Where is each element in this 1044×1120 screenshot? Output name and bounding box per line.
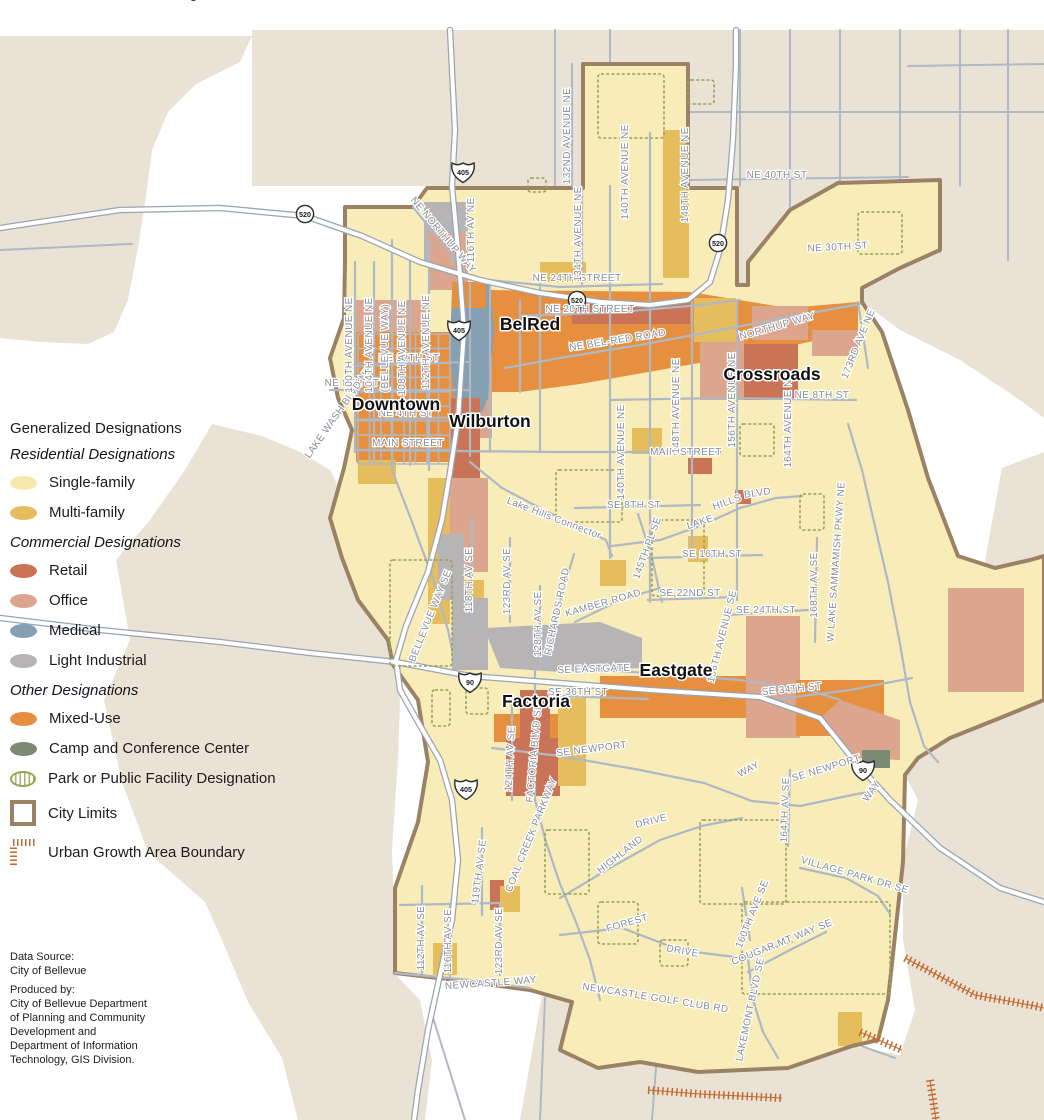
- shield-number: 520: [299, 210, 311, 219]
- street-label: 123RD AV SE: [502, 548, 513, 614]
- legend-item-urban-growth-area-boundary: Urban Growth Area Boundary: [10, 839, 340, 865]
- street-label: 148TH AVENUE NE: [671, 358, 682, 453]
- street-label: SE 16TH ST: [682, 549, 742, 560]
- legend-item-label: Urban Growth Area Boundary: [48, 844, 245, 861]
- street-label: 168TH AV SE: [809, 552, 820, 617]
- street-label: SE 24TH ST: [736, 605, 796, 616]
- medical-swatch-icon: [10, 624, 37, 638]
- street-label: 104TH AVENUE NE: [364, 297, 375, 392]
- legend-item-retail: Retail: [10, 562, 340, 579]
- camp-and-conference-center-swatch-icon: [10, 742, 37, 756]
- landuse-patch-office: [948, 588, 1024, 692]
- credit-line: City of Bellevue: [10, 964, 200, 978]
- street-label: 128TH AV SE: [533, 591, 544, 656]
- credit-line: City of Bellevue Department: [10, 997, 200, 1011]
- street-label: NE 40TH ST: [747, 170, 808, 181]
- map-legend: Generalized Designations Residential Des…: [10, 420, 340, 878]
- credit-line: Data Source:: [10, 950, 200, 964]
- street-label: 140TH AVENUE NE: [616, 404, 627, 499]
- office-swatch-icon: [10, 594, 37, 608]
- legend-item-label: Park or Public Facility Designation: [48, 770, 276, 787]
- legend-body: Residential DesignationsSingle-familyMul…: [10, 446, 340, 865]
- area-label: BelRed: [500, 314, 560, 334]
- street-label: 116TH AV NE: [466, 197, 477, 262]
- street-label: (BELLEVUE WAY): [380, 304, 391, 392]
- landuse-patch-multi: [600, 560, 626, 586]
- street-label: 134TH AVENUE NE: [573, 186, 584, 281]
- street-label: 112TH AVENUE NE: [421, 295, 432, 390]
- area-label: Crossroads: [723, 364, 821, 384]
- legend-item-label: Medical: [49, 622, 101, 639]
- legend-item-camp-and-conference-center: Camp and Conference Center: [10, 740, 340, 757]
- outside-road: [430, 1008, 465, 1120]
- legend-heading-other-designations: Other Designations: [10, 682, 340, 699]
- urban-growth-area-boundary-swatch-icon: [10, 839, 36, 865]
- area-label: Factoria: [502, 691, 570, 711]
- light-industrial-swatch-icon: [10, 654, 37, 668]
- state-route-520-shield-icon: 520: [709, 234, 726, 251]
- beige-region: [0, 36, 252, 344]
- multi-family-swatch-icon: [10, 506, 37, 520]
- retail-swatch-icon: [10, 564, 37, 578]
- legend-item-label: Office: [49, 592, 88, 609]
- street-label: MAIN STREET: [372, 438, 444, 449]
- area-label: Wilburton: [449, 411, 530, 431]
- shield-number: 405: [453, 326, 465, 335]
- street-label: 100TH AVENUE NE: [344, 297, 355, 392]
- street-label: 140TH AVENUE NE: [620, 124, 631, 219]
- legend-item-label: Retail: [49, 562, 87, 579]
- credit-line: Development and: [10, 1025, 200, 1039]
- mixed-use-swatch-icon: [10, 712, 37, 726]
- street-label: NE 8TH ST: [795, 390, 850, 401]
- legend-item-label: Light Industrial: [49, 652, 147, 669]
- area-label: Downtown: [352, 394, 440, 414]
- legend-heading-commercial-designations: Commercial Designations: [10, 534, 340, 551]
- legend-item-park-or-public-facility-designation: Park or Public Facility Designation: [10, 770, 340, 787]
- landuse-patch-office: [746, 616, 800, 738]
- landuse-patch-multi: [558, 698, 586, 786]
- street-label: 108TH AVENUE NE: [397, 300, 408, 395]
- street-label: 164TH AV SE: [779, 777, 792, 843]
- state-route-520-shield-icon: 520: [296, 205, 313, 222]
- legend-item-mixed-use: Mixed-Use: [10, 710, 340, 727]
- shield-number: 520: [712, 239, 724, 248]
- legend-item-multi-family: Multi-family: [10, 504, 340, 521]
- legend-item-light-industrial: Light Industrial: [10, 652, 340, 669]
- bellevue-landuse-map-page: Generalized land use designations 405405…: [0, 0, 1044, 1120]
- legend-item-label: Mixed-Use: [49, 710, 121, 727]
- shield-number: 405: [457, 168, 469, 177]
- map-credits: Data Source:City of BellevueProduced by:…: [10, 950, 200, 1067]
- legend-item-office: Office: [10, 592, 340, 609]
- credit-line: Department of Information: [10, 1039, 200, 1053]
- landuse-patch-multi: [838, 1012, 862, 1046]
- street-label: 123RD AV SE: [494, 908, 505, 974]
- street-label: 132ND AVENUE NE: [562, 88, 573, 184]
- street-label: SE 22ND ST: [659, 588, 720, 599]
- single-family-swatch-icon: [10, 476, 37, 490]
- legend-item-label: Multi-family: [49, 504, 125, 521]
- credit-line: Produced by:: [10, 983, 200, 997]
- area-label: Eastgate: [640, 660, 713, 680]
- street-label: 116TH AV SE: [443, 909, 454, 974]
- legend-item-medical: Medical: [10, 622, 340, 639]
- city-limits-swatch-icon: [10, 800, 36, 826]
- credit-line: Technology, GIS Division.: [10, 1053, 200, 1067]
- legend-item-city-limits: City Limits: [10, 800, 340, 826]
- shield-number: 90: [859, 766, 867, 775]
- legend-item-label: Single-family: [49, 474, 135, 491]
- street-label: MAIN STREET: [650, 447, 722, 458]
- legend-item-label: Camp and Conference Center: [49, 740, 249, 757]
- street-label: 118TH AV SE: [464, 548, 475, 613]
- shield-number: 405: [460, 785, 472, 794]
- street-label: 112TH AV SE: [416, 906, 427, 971]
- legend-item-label: City Limits: [48, 805, 117, 822]
- shield-number: 90: [466, 678, 474, 687]
- park-or-public-facility-designation-swatch-icon: [10, 771, 36, 787]
- credit-line: of Planning and Community: [10, 1011, 200, 1025]
- legend-title: Generalized Designations: [10, 420, 340, 437]
- legend-item-single-family: Single-family: [10, 474, 340, 491]
- legend-heading-residential-designations: Residential Designations: [10, 446, 340, 463]
- street-label: 148TH AVENUE NE: [680, 127, 691, 222]
- street-label: 164TH AVENUE NE: [783, 372, 794, 467]
- street-label: SE 8TH ST: [607, 500, 661, 511]
